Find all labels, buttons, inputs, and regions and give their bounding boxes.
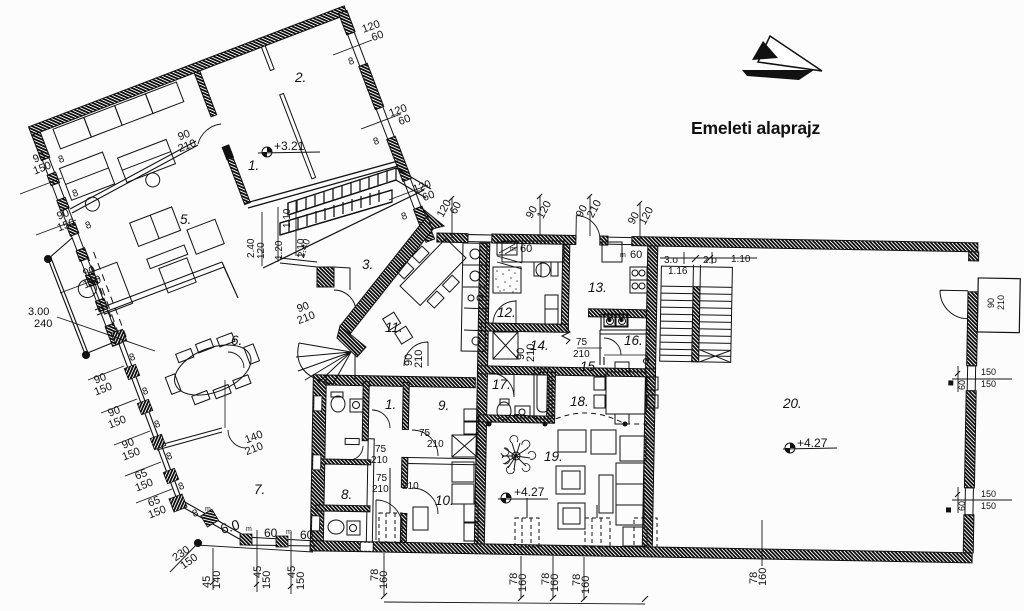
svg-text:60: 60 bbox=[264, 526, 278, 540]
svg-text:150: 150 bbox=[981, 367, 996, 377]
svg-text:1.: 1. bbox=[385, 397, 396, 412]
svg-text:17.: 17. bbox=[492, 377, 511, 392]
svg-text:120: 120 bbox=[256, 242, 267, 259]
svg-text:1.: 1. bbox=[248, 158, 259, 173]
svg-text:1.10: 1.10 bbox=[731, 254, 751, 265]
svg-text:160: 160 bbox=[549, 574, 561, 592]
svg-text:3.o: 3.o bbox=[664, 255, 678, 266]
svg-text:120: 120 bbox=[535, 199, 554, 221]
svg-text:8: 8 bbox=[400, 211, 409, 223]
svg-text:60: 60 bbox=[421, 189, 437, 204]
svg-text:60: 60 bbox=[520, 243, 532, 255]
svg-text:210: 210 bbox=[413, 350, 425, 368]
svg-text:60: 60 bbox=[957, 380, 967, 390]
svg-text:75: 75 bbox=[376, 473, 388, 484]
svg-text:Emeleti alaprajz: Emeleti alaprajz bbox=[691, 118, 821, 138]
svg-text:60: 60 bbox=[370, 29, 386, 44]
svg-text:11.: 11. bbox=[385, 320, 403, 335]
svg-text:18.: 18. bbox=[570, 394, 589, 409]
svg-text:9.: 9. bbox=[438, 398, 449, 413]
svg-text:5.: 5. bbox=[180, 212, 191, 227]
svg-text:13.: 13. bbox=[588, 280, 607, 295]
svg-text:m: m bbox=[620, 252, 626, 259]
svg-text:8: 8 bbox=[347, 56, 356, 68]
svg-text:60: 60 bbox=[397, 113, 413, 128]
svg-text:+3.21: +3.21 bbox=[274, 139, 305, 153]
svg-text:160: 160 bbox=[517, 574, 529, 592]
svg-text:8: 8 bbox=[71, 188, 81, 200]
svg-text:8: 8 bbox=[141, 386, 151, 398]
svg-text:1.20: 1.20 bbox=[274, 240, 285, 260]
svg-text:150: 150 bbox=[981, 379, 996, 389]
svg-text:75: 75 bbox=[375, 444, 387, 455]
svg-text:8.: 8. bbox=[341, 487, 352, 502]
svg-text:20.: 20. bbox=[782, 396, 802, 411]
svg-text:m: m bbox=[286, 529, 292, 536]
svg-text:15.: 15. bbox=[580, 359, 599, 374]
svg-text:2.o: 2.o bbox=[703, 255, 717, 266]
svg-text:8: 8 bbox=[153, 419, 163, 431]
svg-text:2.: 2. bbox=[294, 70, 306, 85]
svg-text:10.: 10. bbox=[435, 493, 454, 508]
svg-text:m: m bbox=[510, 246, 516, 253]
svg-text:8: 8 bbox=[165, 451, 175, 463]
svg-text:210: 210 bbox=[427, 439, 444, 450]
svg-text:210: 210 bbox=[996, 295, 1006, 310]
svg-text:160: 160 bbox=[378, 571, 390, 589]
svg-text:150: 150 bbox=[295, 572, 307, 590]
svg-text:210: 210 bbox=[372, 484, 389, 495]
svg-text:75: 75 bbox=[419, 428, 431, 439]
svg-text:8: 8 bbox=[84, 220, 94, 232]
svg-text:60: 60 bbox=[957, 501, 967, 511]
svg-text:150: 150 bbox=[981, 489, 996, 499]
svg-text:3.00: 3.00 bbox=[28, 306, 49, 318]
svg-text:6.0: 6.0 bbox=[218, 516, 241, 537]
svg-text:150: 150 bbox=[981, 501, 996, 511]
svg-text:75: 75 bbox=[576, 337, 588, 348]
svg-text:60: 60 bbox=[630, 249, 642, 261]
svg-text:210: 210 bbox=[402, 481, 419, 492]
svg-text:150: 150 bbox=[261, 571, 273, 589]
svg-text:140: 140 bbox=[211, 571, 223, 589]
svg-text:m: m bbox=[246, 526, 252, 533]
svg-text:16.: 16. bbox=[624, 333, 643, 348]
svg-text:8: 8 bbox=[57, 154, 67, 166]
svg-text:3.: 3. bbox=[362, 257, 373, 272]
svg-text:240: 240 bbox=[34, 318, 52, 330]
svg-text:+4.27: +4.27 bbox=[514, 485, 545, 499]
svg-text:1.16: 1.16 bbox=[668, 266, 688, 277]
svg-text:7.: 7. bbox=[254, 482, 265, 497]
svg-text:210: 210 bbox=[573, 349, 590, 360]
svg-text:m: m bbox=[205, 506, 211, 513]
svg-text:160: 160 bbox=[580, 576, 592, 594]
svg-text:210: 210 bbox=[525, 344, 537, 362]
svg-text:210: 210 bbox=[371, 455, 388, 466]
svg-text:8: 8 bbox=[128, 352, 138, 364]
svg-text:6.: 6. bbox=[231, 333, 242, 348]
svg-text:90: 90 bbox=[986, 298, 996, 308]
svg-text:60: 60 bbox=[300, 528, 314, 542]
svg-text:8: 8 bbox=[372, 136, 381, 148]
svg-text:19.: 19. bbox=[544, 449, 563, 464]
svg-text:1.10: 1.10 bbox=[282, 208, 293, 228]
svg-text:210: 210 bbox=[585, 198, 604, 220]
svg-text:160: 160 bbox=[757, 568, 769, 586]
